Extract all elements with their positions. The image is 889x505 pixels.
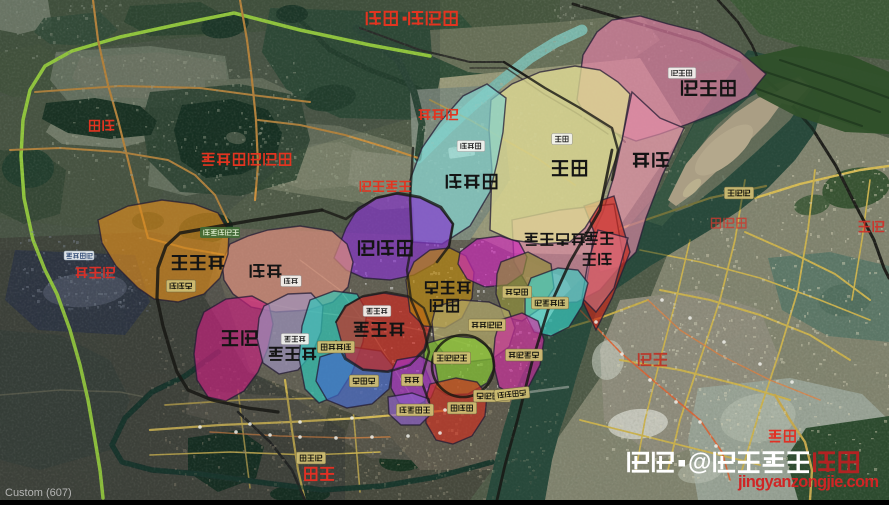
svg-text:Custom (607): Custom (607) [5,487,72,499]
svg-text:@: @ [688,449,711,476]
svg-text:jingyanzongjie.com: jingyanzongjie.com [737,473,879,491]
